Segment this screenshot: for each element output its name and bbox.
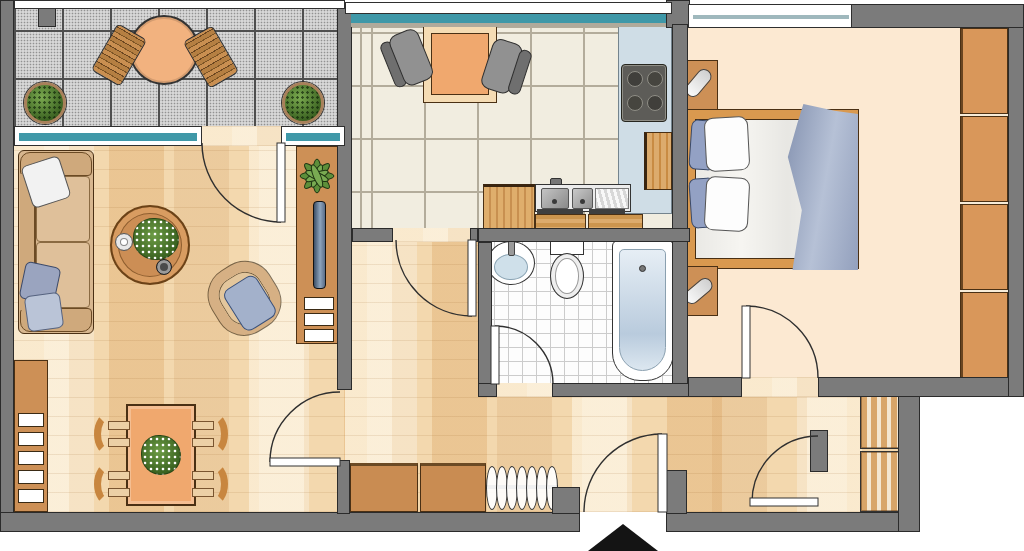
wardrobe-section	[960, 116, 1008, 202]
burner	[627, 95, 643, 111]
bathroom-door	[486, 320, 558, 392]
tv	[313, 201, 326, 289]
kitchen-sink-unit	[535, 184, 631, 212]
chair-seat	[192, 421, 214, 430]
bed-pillow-white	[704, 176, 751, 232]
storage-shelf-unit	[860, 388, 900, 449]
dining-chair	[190, 462, 228, 506]
sideboard-plant	[299, 151, 335, 201]
chair-seat	[192, 438, 214, 447]
chair-back	[198, 412, 228, 456]
sideboard-shelf	[304, 297, 334, 310]
dining-shelf-unit	[14, 360, 48, 512]
sideboard-shelf	[304, 313, 334, 326]
nightstand-bottom	[684, 266, 718, 316]
wall-bedroom-bottom	[818, 377, 1024, 397]
sink-drain	[552, 199, 557, 204]
chair-seat	[192, 471, 214, 480]
entrance-door	[576, 430, 670, 516]
shelf	[18, 470, 44, 484]
wall-divider-living-kitchen	[337, 6, 352, 390]
wall-divider-kitchen-bedroom	[672, 24, 688, 397]
wardrobe	[960, 28, 1008, 378]
window-glazing	[286, 133, 340, 141]
nightstand-top	[684, 60, 718, 110]
balcony-plant-right	[282, 82, 324, 124]
wall-right-outer	[1008, 4, 1024, 397]
bathtub-drain	[639, 265, 646, 272]
coffee-table-candle	[115, 233, 133, 251]
shelf	[18, 413, 44, 427]
wardrobe-section	[960, 292, 1008, 378]
dining-table-centerpiece	[141, 435, 181, 475]
burner	[647, 71, 663, 87]
balcony-door	[198, 140, 290, 224]
kitchen-door	[390, 234, 482, 324]
kitchen-window-sill	[351, 23, 666, 27]
wall-kitchen-south-left	[352, 228, 393, 242]
coffee-table-bouquet	[133, 218, 179, 260]
wall-bottom-right	[666, 512, 920, 532]
sideboard	[296, 146, 338, 344]
entrance-arrow	[588, 524, 658, 551]
wall-bottom-left	[0, 512, 580, 532]
kitchen-counter-block	[483, 184, 535, 233]
bedroom-window	[688, 4, 852, 28]
chair-seat	[108, 488, 130, 497]
window-glazing	[19, 133, 197, 141]
kitchen-window-glazing	[351, 14, 666, 23]
chair-seat	[108, 421, 130, 430]
balcony-window-left	[14, 126, 202, 146]
sink-drain	[580, 199, 585, 204]
chair-back	[94, 412, 124, 456]
basin-faucet	[508, 240, 515, 256]
sideboard-shelf	[304, 329, 334, 342]
toilet	[550, 241, 584, 301]
storage-shelf-unit	[860, 451, 900, 512]
sofa	[18, 150, 94, 334]
hall-cabinet	[420, 463, 486, 512]
balcony-window-right	[281, 126, 345, 146]
burner	[627, 71, 643, 87]
wardrobe-section	[960, 28, 1008, 114]
wall-left-outer	[0, 0, 14, 532]
chair-seat	[108, 438, 130, 447]
cooktop	[621, 64, 667, 122]
toilet-bowl	[550, 253, 584, 299]
wardrobe-section	[960, 204, 1008, 290]
shelf	[18, 432, 44, 446]
kitchen-window	[345, 2, 672, 14]
window-glazing	[693, 15, 849, 19]
shelf	[18, 489, 44, 503]
floor-plan-canvas	[0, 0, 1024, 551]
balcony-railing	[14, 0, 345, 9]
wall-top-bedroom	[850, 4, 1024, 28]
washbasin	[487, 241, 535, 285]
balcony-plant-left	[24, 82, 66, 124]
kitchen-tall-cabinet	[644, 132, 672, 190]
shelf	[18, 451, 44, 465]
dining-chair	[190, 412, 228, 456]
burner	[647, 95, 663, 111]
chair-back	[198, 462, 228, 506]
basin-bowl	[494, 254, 528, 280]
bathtub	[612, 240, 674, 381]
bed-pillow-white	[704, 116, 751, 172]
chair-seat	[192, 488, 214, 497]
chair-seat	[108, 471, 130, 480]
sofa-pillow-lightblue	[24, 292, 65, 333]
dining-chair	[94, 462, 132, 506]
wall-storage-right	[898, 392, 920, 532]
dining-chair	[94, 412, 132, 456]
storage-door	[748, 434, 822, 506]
wall-bathroom-top	[478, 228, 690, 242]
sink-drainboard	[595, 188, 629, 209]
wall-living-door-stub	[337, 460, 350, 514]
wall-bathroom-bottom-right	[552, 383, 690, 397]
coffee-table-bowl	[156, 259, 172, 275]
wall-bedroom-bottom-left	[688, 377, 742, 397]
living-room-door	[258, 386, 350, 468]
hall-cabinet	[350, 463, 418, 512]
chair-back	[94, 462, 124, 506]
bedroom-door	[736, 300, 828, 386]
